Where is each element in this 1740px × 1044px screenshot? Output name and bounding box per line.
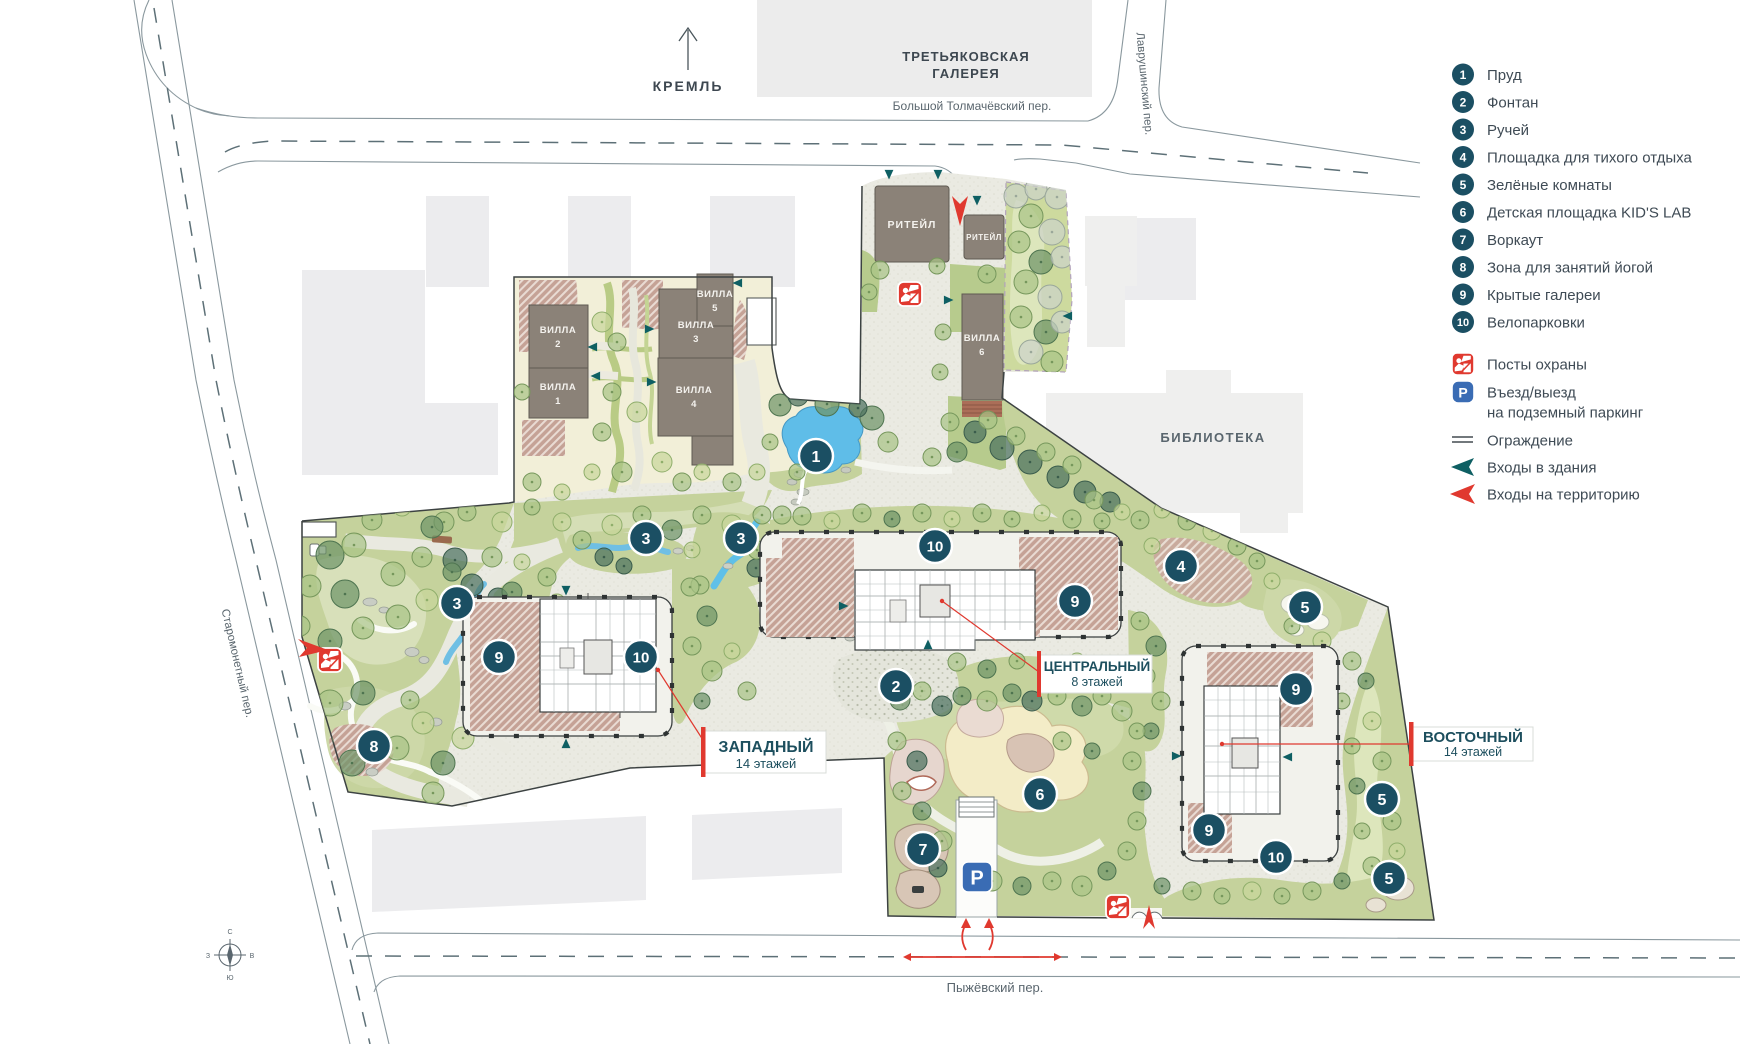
svg-text:Зона для занятий йогой: Зона для занятий йогой bbox=[1487, 259, 1653, 276]
svg-text:ТРЕТЬЯКОВСКАЯ: ТРЕТЬЯКОВСКАЯ bbox=[902, 49, 1029, 64]
svg-text:14 этажей: 14 этажей bbox=[736, 756, 797, 771]
svg-text:ГАЛЕРЕЯ: ГАЛЕРЕЯ bbox=[932, 66, 1000, 81]
svg-text:на подземный паркинг: на подземный паркинг bbox=[1487, 404, 1644, 421]
svg-text:ВИЛЛА: ВИЛЛА bbox=[964, 333, 1000, 344]
svg-text:Велопарковки: Велопарковки bbox=[1487, 314, 1585, 331]
svg-text:3: 3 bbox=[737, 531, 746, 548]
svg-text:7: 7 bbox=[1460, 233, 1467, 247]
svg-text:ЗАПАДНЫЙ: ЗАПАДНЫЙ bbox=[718, 737, 813, 756]
svg-text:КРЕМЛЬ: КРЕМЛЬ bbox=[653, 78, 724, 94]
svg-text:3: 3 bbox=[693, 334, 699, 345]
svg-text:1: 1 bbox=[1460, 68, 1467, 82]
svg-text:Площадка для тихого отдыха: Площадка для тихого отдыха bbox=[1487, 149, 1693, 166]
svg-text:Ручей: Ручей bbox=[1487, 122, 1529, 139]
svg-text:ВИЛЛА: ВИЛЛА bbox=[697, 289, 733, 300]
svg-text:5: 5 bbox=[712, 303, 718, 314]
svg-text:9: 9 bbox=[495, 650, 504, 667]
svg-text:10: 10 bbox=[927, 538, 944, 555]
svg-text:7: 7 bbox=[919, 842, 928, 859]
svg-text:14 этажей: 14 этажей bbox=[1444, 745, 1502, 759]
svg-text:5: 5 bbox=[1460, 178, 1467, 192]
svg-text:10: 10 bbox=[633, 649, 650, 666]
svg-text:9: 9 bbox=[1460, 288, 1467, 302]
svg-text:6: 6 bbox=[1460, 205, 1467, 219]
svg-text:Входы в здания: Входы в здания bbox=[1487, 459, 1596, 476]
svg-text:3: 3 bbox=[642, 531, 651, 548]
svg-text:6: 6 bbox=[979, 347, 985, 358]
svg-text:9: 9 bbox=[1292, 682, 1301, 699]
svg-text:Посты охраны: Посты охраны bbox=[1487, 356, 1587, 373]
svg-text:1: 1 bbox=[812, 449, 821, 466]
svg-text:P: P bbox=[970, 868, 983, 890]
svg-text:2: 2 bbox=[1460, 95, 1467, 109]
svg-text:1: 1 bbox=[555, 396, 561, 407]
svg-text:2: 2 bbox=[892, 679, 901, 696]
svg-text:Входы на территорию: Входы на территорию bbox=[1487, 486, 1640, 503]
svg-text:С: С bbox=[227, 929, 232, 936]
svg-text:Воркаут: Воркаут bbox=[1487, 232, 1543, 249]
svg-text:ВОСТОЧНЫЙ: ВОСТОЧНЫЙ bbox=[1423, 728, 1523, 746]
svg-text:8: 8 bbox=[370, 739, 379, 756]
svg-text:БИБЛИОТЕКА: БИБЛИОТЕКА bbox=[1160, 430, 1265, 445]
svg-text:3: 3 bbox=[453, 596, 462, 613]
svg-text:ВИЛЛА: ВИЛЛА bbox=[540, 325, 576, 336]
svg-text:9: 9 bbox=[1205, 823, 1214, 840]
svg-text:Ограждение: Ограждение bbox=[1487, 432, 1573, 449]
svg-text:3: 3 bbox=[1460, 123, 1467, 137]
svg-text:Пыжёвский пер.: Пыжёвский пер. bbox=[947, 980, 1044, 995]
svg-text:P: P bbox=[1458, 385, 1467, 401]
svg-text:РИТЕЙЛ: РИТЕЙЛ bbox=[966, 233, 1002, 242]
svg-text:9: 9 bbox=[1071, 594, 1080, 611]
svg-text:З: З bbox=[206, 953, 210, 960]
svg-text:Большой Толмачёвский пер.: Большой Толмачёвский пер. bbox=[893, 99, 1052, 113]
svg-text:8 этажей: 8 этажей bbox=[1071, 675, 1122, 689]
svg-text:Въезд/выезд: Въезд/выезд bbox=[1487, 384, 1576, 401]
svg-text:ЦЕНТРАЛЬНЫЙ: ЦЕНТРАЛЬНЫЙ bbox=[1044, 659, 1150, 674]
svg-text:10: 10 bbox=[1457, 317, 1469, 329]
svg-text:6: 6 bbox=[1036, 787, 1045, 804]
svg-text:Фонтан: Фонтан bbox=[1487, 94, 1538, 111]
svg-text:5: 5 bbox=[1385, 871, 1394, 888]
svg-text:Ю: Ю bbox=[226, 975, 233, 982]
svg-text:4: 4 bbox=[1460, 150, 1467, 164]
svg-text:4: 4 bbox=[691, 399, 697, 410]
svg-text:5: 5 bbox=[1301, 600, 1310, 617]
svg-text:2: 2 bbox=[555, 339, 561, 350]
svg-text:8: 8 bbox=[1460, 260, 1467, 274]
svg-text:4: 4 bbox=[1177, 559, 1186, 576]
svg-text:В: В bbox=[250, 953, 255, 960]
svg-text:РИТЕЙЛ: РИТЕЙЛ bbox=[888, 218, 937, 231]
svg-text:Крытые галереи: Крытые галереи bbox=[1487, 287, 1601, 304]
svg-text:Зелёные комнаты: Зелёные комнаты bbox=[1487, 177, 1612, 194]
svg-text:Детская площадка KID'S LAB: Детская площадка KID'S LAB bbox=[1487, 204, 1691, 221]
svg-text:ВИЛЛА: ВИЛЛА bbox=[676, 385, 712, 396]
svg-text:10: 10 bbox=[1268, 849, 1285, 866]
svg-text:ВИЛЛА: ВИЛЛА bbox=[678, 320, 714, 331]
svg-text:ВИЛЛА: ВИЛЛА bbox=[540, 382, 576, 393]
svg-text:5: 5 bbox=[1378, 792, 1387, 809]
svg-text:Пруд: Пруд bbox=[1487, 67, 1522, 84]
